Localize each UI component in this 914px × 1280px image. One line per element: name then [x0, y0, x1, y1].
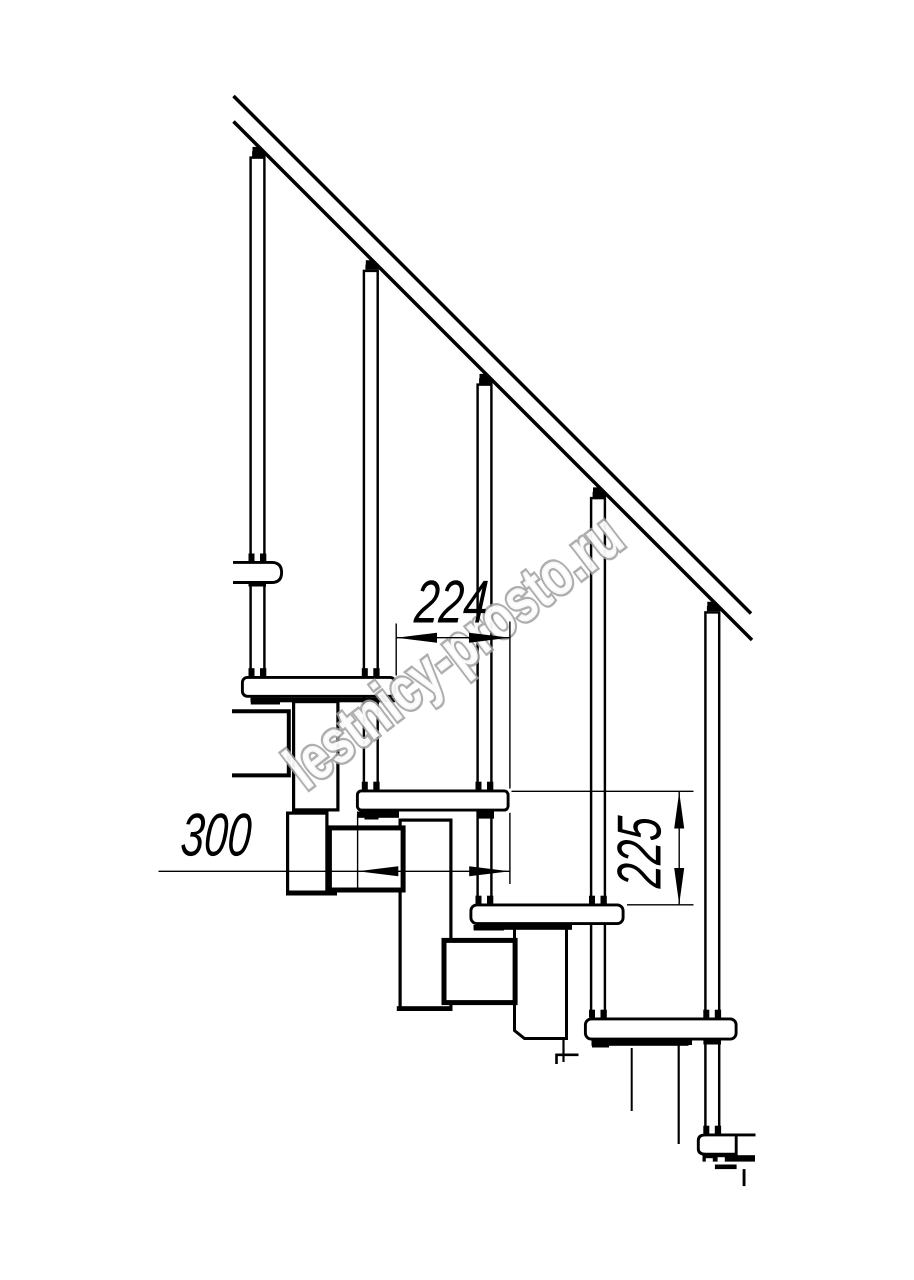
svg-text:224: 224 [412, 569, 491, 636]
svg-text:225: 225 [606, 814, 675, 890]
svg-text:300: 300 [179, 802, 254, 869]
